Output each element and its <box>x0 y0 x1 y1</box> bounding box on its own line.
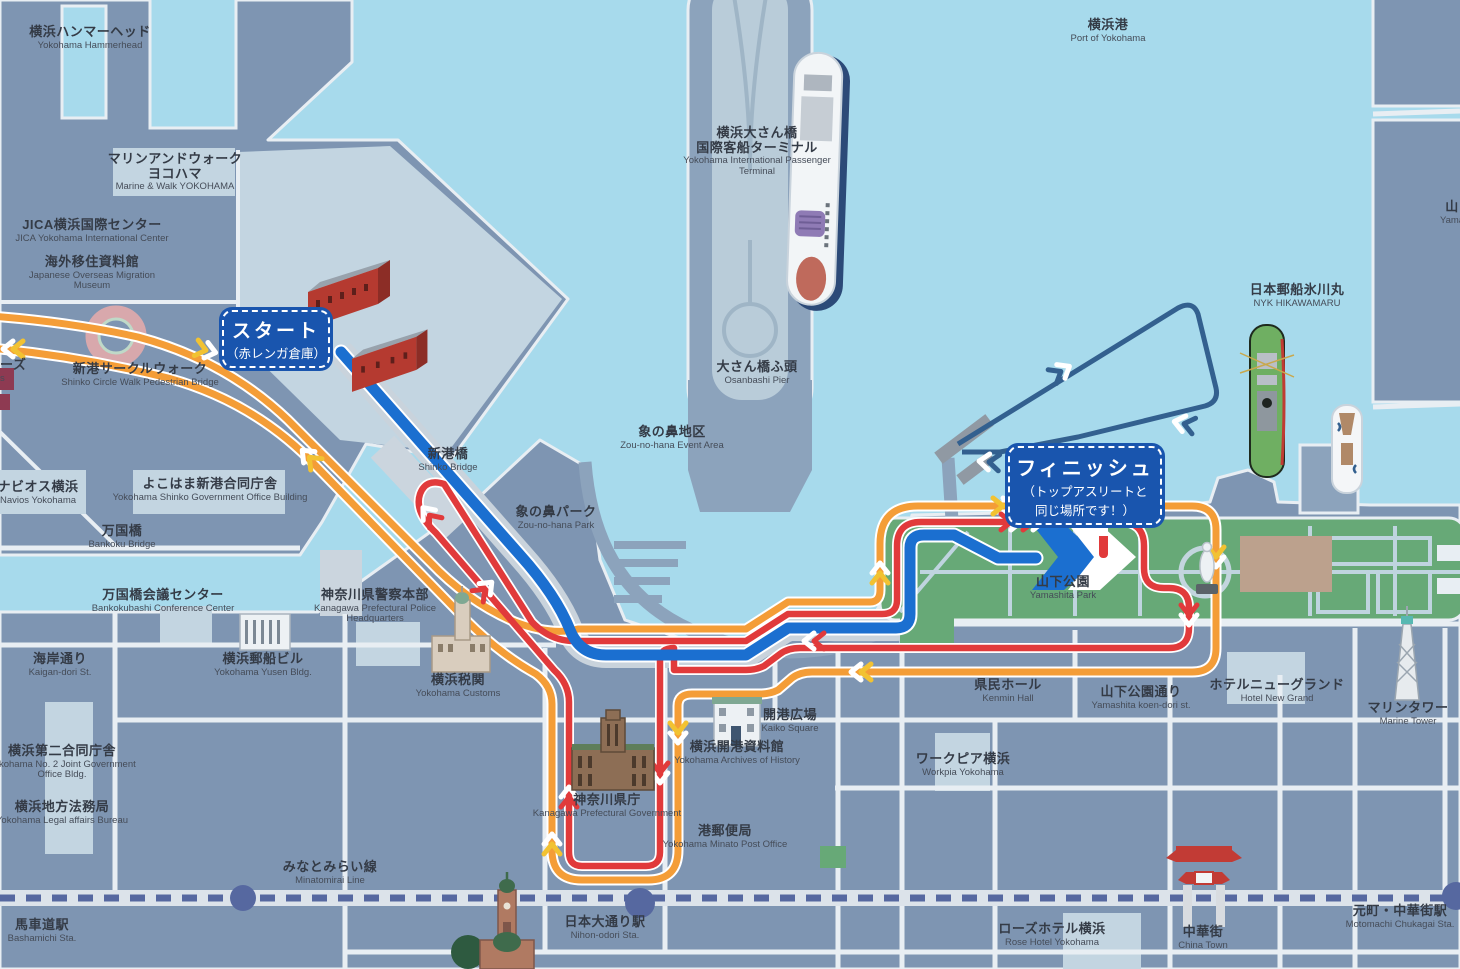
finish-badge-title: フィニッシュ <box>1012 452 1158 481</box>
station-dot-nihon-odori <box>625 888 655 918</box>
cruise-ship-icon <box>786 52 851 312</box>
finish-badge-subtitle-1: （トップアスリートと <box>1012 481 1158 500</box>
finish-badge-subtitle-2: 同じ場所です！） <box>1012 500 1158 519</box>
course-map-page: { "map": { "title": "Yokohama waterfront… <box>0 0 1460 969</box>
finish-badge: フィニッシュ （トップアスリートと 同じ場所です！） <box>1008 446 1162 525</box>
small-boat-icon <box>1332 405 1362 493</box>
station-dot-bashamichi <box>230 885 256 911</box>
start-badge: スタート （赤レンガ倉庫） <box>222 310 330 368</box>
archives-building-icon <box>712 697 762 746</box>
park-garden-bed <box>1240 536 1332 592</box>
start-badge-title: スタート <box>226 316 326 343</box>
bankoku-bridge-deck <box>320 550 362 616</box>
map-canvas <box>0 0 1460 969</box>
yusen-building-icon <box>240 614 290 650</box>
start-badge-subtitle: （赤レンガ倉庫） <box>226 343 326 362</box>
